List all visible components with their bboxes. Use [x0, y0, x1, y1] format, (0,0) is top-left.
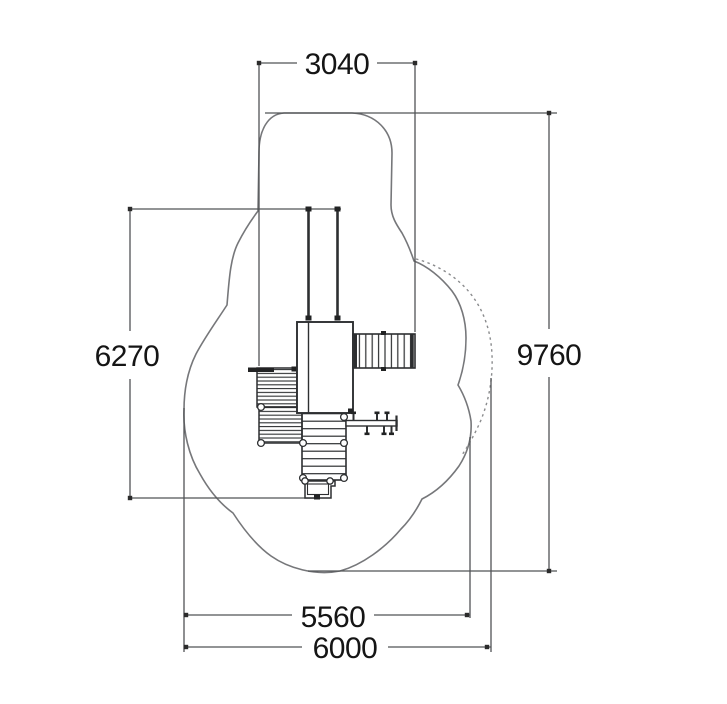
dimension-label-left-height: 6270	[95, 340, 160, 373]
dimension-label-bottom-total-width: 6000	[313, 632, 378, 665]
safety-zone-outline-dashed	[416, 259, 492, 455]
balance-beam	[346, 412, 397, 436]
stairs	[302, 413, 346, 480]
dimension-label-top-width: 3040	[305, 48, 370, 81]
playground-plan-diagram: 3040 9760 6270 5560 6000	[0, 0, 727, 704]
dimension-label-bottom-inner-width: 5560	[301, 601, 366, 634]
dimension-label-right-height: 9760	[517, 339, 582, 372]
slide	[306, 207, 341, 321]
access-ladder-upper	[248, 367, 297, 408]
access-ladder-lower	[259, 407, 302, 443]
plan-drawing-canvas: 3040 9760 6270 5560 6000	[0, 0, 727, 704]
play-structure	[248, 207, 415, 500]
tower-platform	[297, 322, 353, 414]
bridge-ladder	[353, 331, 415, 371]
